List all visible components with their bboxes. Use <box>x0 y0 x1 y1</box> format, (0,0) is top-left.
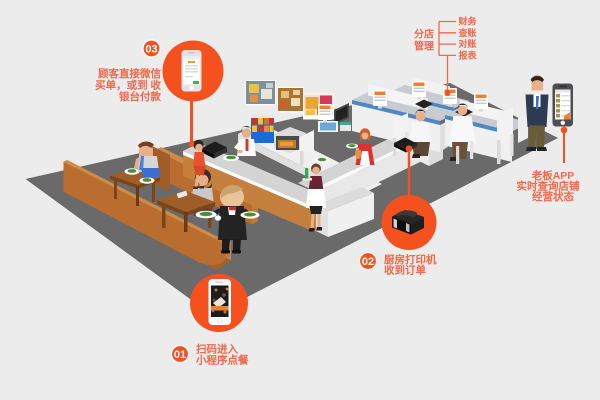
svg-text:买单，或到 收: 买单，或到 收 <box>95 79 161 92</box>
svg-text:报表: 报表 <box>459 49 478 60</box>
svg-text:02: 02 <box>362 256 374 268</box>
svg-text:财务: 财务 <box>458 16 478 27</box>
svg-text:01: 01 <box>174 349 186 361</box>
svg-text:查账: 查账 <box>458 27 477 38</box>
svg-text:收到订单: 收到订单 <box>384 264 426 277</box>
svg-text:顾客直接微信: 顾客直接微信 <box>98 67 161 80</box>
svg-text:03: 03 <box>145 44 157 56</box>
svg-text:对账: 对账 <box>459 38 477 49</box>
svg-text:管理: 管理 <box>414 40 434 53</box>
svg-text:小程序点餐: 小程序点餐 <box>195 354 249 367</box>
svg-text:经营状态: 经营状态 <box>532 190 574 203</box>
svg-text:银台付款: 银台付款 <box>119 90 161 103</box>
svg-text:分店: 分店 <box>414 28 434 41</box>
